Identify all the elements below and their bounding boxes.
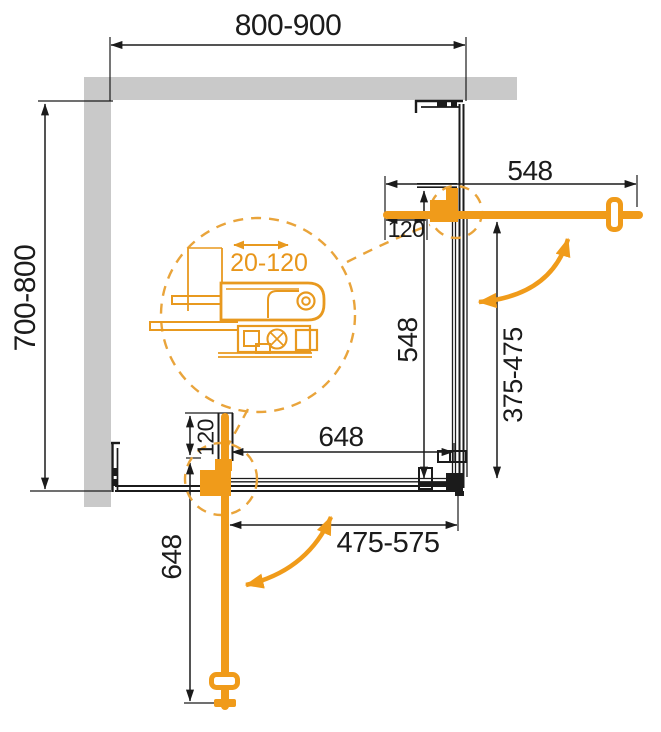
- plan-drawing: [0, 0, 661, 732]
- dim-label-fixed-panel-right: 548: [394, 292, 422, 388]
- wall-top: [84, 77, 517, 100]
- dim-label-profile-adjustment: 20-120: [209, 249, 329, 278]
- dim-label-door-arm-bottom: 648: [158, 507, 186, 607]
- dim-label-hinge-offset-top: 120: [378, 216, 434, 243]
- door-handle-top: [609, 200, 621, 230]
- detail-circle: [161, 218, 355, 412]
- dim-label-depth: 700-800: [11, 198, 41, 398]
- door-pivot-bottom: [200, 470, 231, 496]
- dim-label-width: 800-900: [188, 9, 388, 43]
- dim-label-fixed-panel-bottom: 648: [291, 421, 391, 453]
- dim-label-entry-right: 375-475: [499, 310, 527, 440]
- door-pivot-top: [430, 200, 458, 222]
- dimension-lines: [30, 37, 637, 703]
- wall-left: [84, 100, 111, 507]
- wall-bracket-left: [111, 443, 120, 492]
- swing-arrow-top: [479, 239, 568, 302]
- profile-arm-upper: [172, 296, 221, 304]
- dim-label-door-arm-top: 548: [485, 155, 575, 187]
- door-handle-bottom: [212, 675, 238, 688]
- callout-leader-bottom: [228, 409, 248, 445]
- dim-label-entry-bottom: 475-575: [313, 527, 463, 560]
- wall-bracket-top: [415, 100, 463, 113]
- door-open-bottom: [221, 413, 229, 710]
- dim-label-hinge-offset-bottom: 120: [195, 410, 218, 466]
- profile-arm-lower: [150, 322, 238, 330]
- shower-plan-diagram: 800-900 700-800 548 120 548 375-475 648 …: [0, 0, 661, 732]
